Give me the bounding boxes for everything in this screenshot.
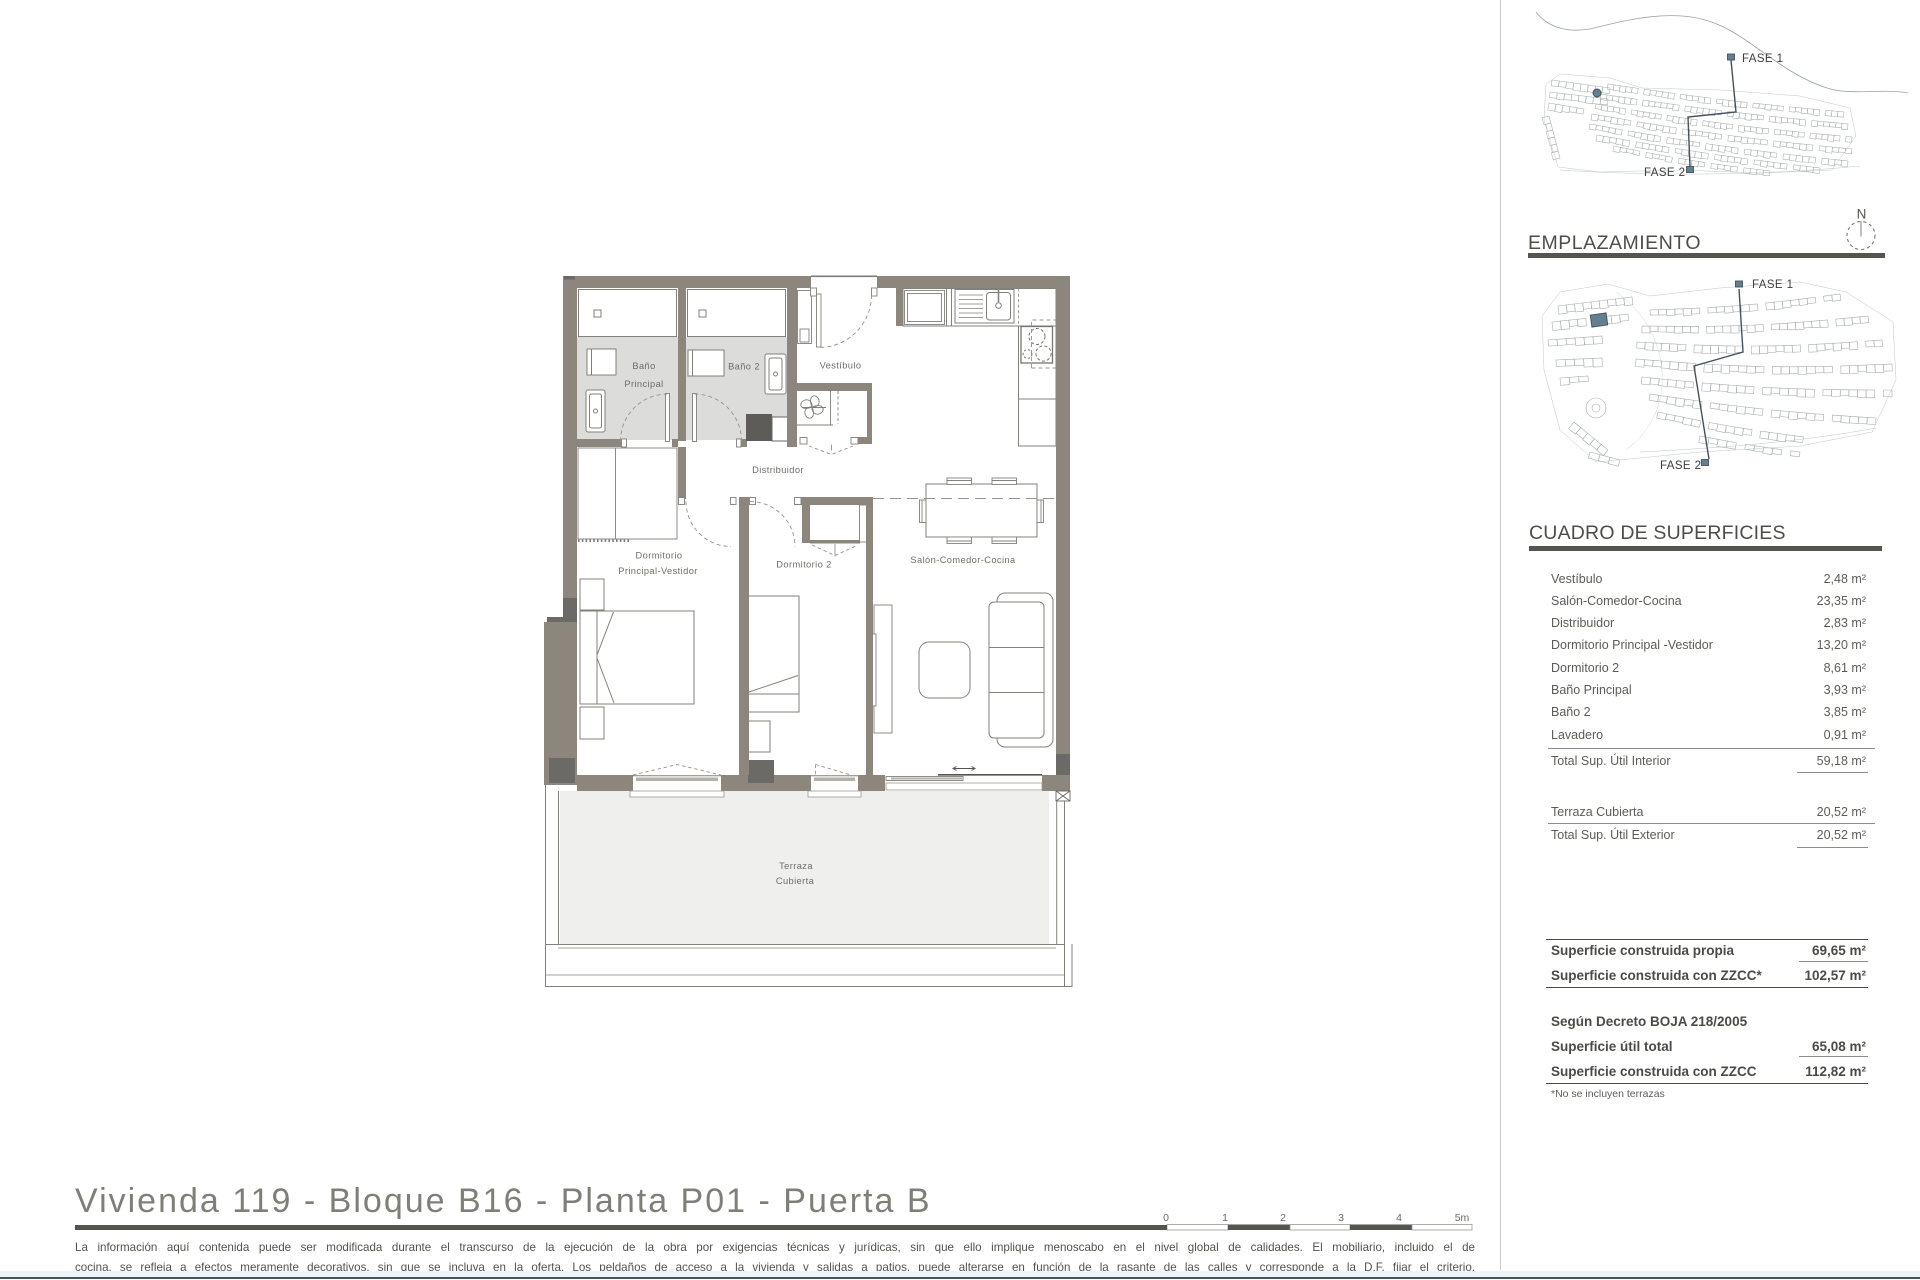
svg-text:0: 0	[1163, 1212, 1169, 1224]
svg-text:Principal-Vestidor: Principal-Vestidor	[618, 566, 698, 576]
svg-text:Principal: Principal	[624, 379, 663, 389]
svg-text:FASE 2: FASE 2	[1660, 460, 1701, 472]
svg-text:FASE 1: FASE 1	[1752, 279, 1793, 291]
svg-text:FASE 1: FASE 1	[1742, 53, 1783, 65]
svg-text:5m: 5m	[1455, 1212, 1470, 1224]
svg-text:Vestíbulo: Vestíbulo	[820, 361, 862, 371]
svg-text:Dormitorio: Dormitorio	[636, 551, 683, 561]
svg-text:1: 1	[1222, 1212, 1228, 1224]
svg-text:Salón-Comedor-Cocina: Salón-Comedor-Cocina	[910, 555, 1016, 565]
svg-text:4: 4	[1396, 1212, 1402, 1224]
svg-text:Dormitorio 2: Dormitorio 2	[776, 560, 831, 570]
svg-text:Terraza: Terraza	[779, 861, 813, 871]
svg-text:2: 2	[1280, 1212, 1286, 1224]
svg-text:Baño: Baño	[632, 361, 655, 371]
svg-text:FASE 2: FASE 2	[1644, 167, 1685, 179]
svg-text:N: N	[1857, 207, 1867, 222]
svg-text:3: 3	[1338, 1212, 1344, 1224]
svg-text:Baño 2: Baño 2	[728, 362, 760, 372]
svg-text:Distribuidor: Distribuidor	[752, 465, 804, 475]
svg-text:Cubierta: Cubierta	[776, 876, 815, 886]
